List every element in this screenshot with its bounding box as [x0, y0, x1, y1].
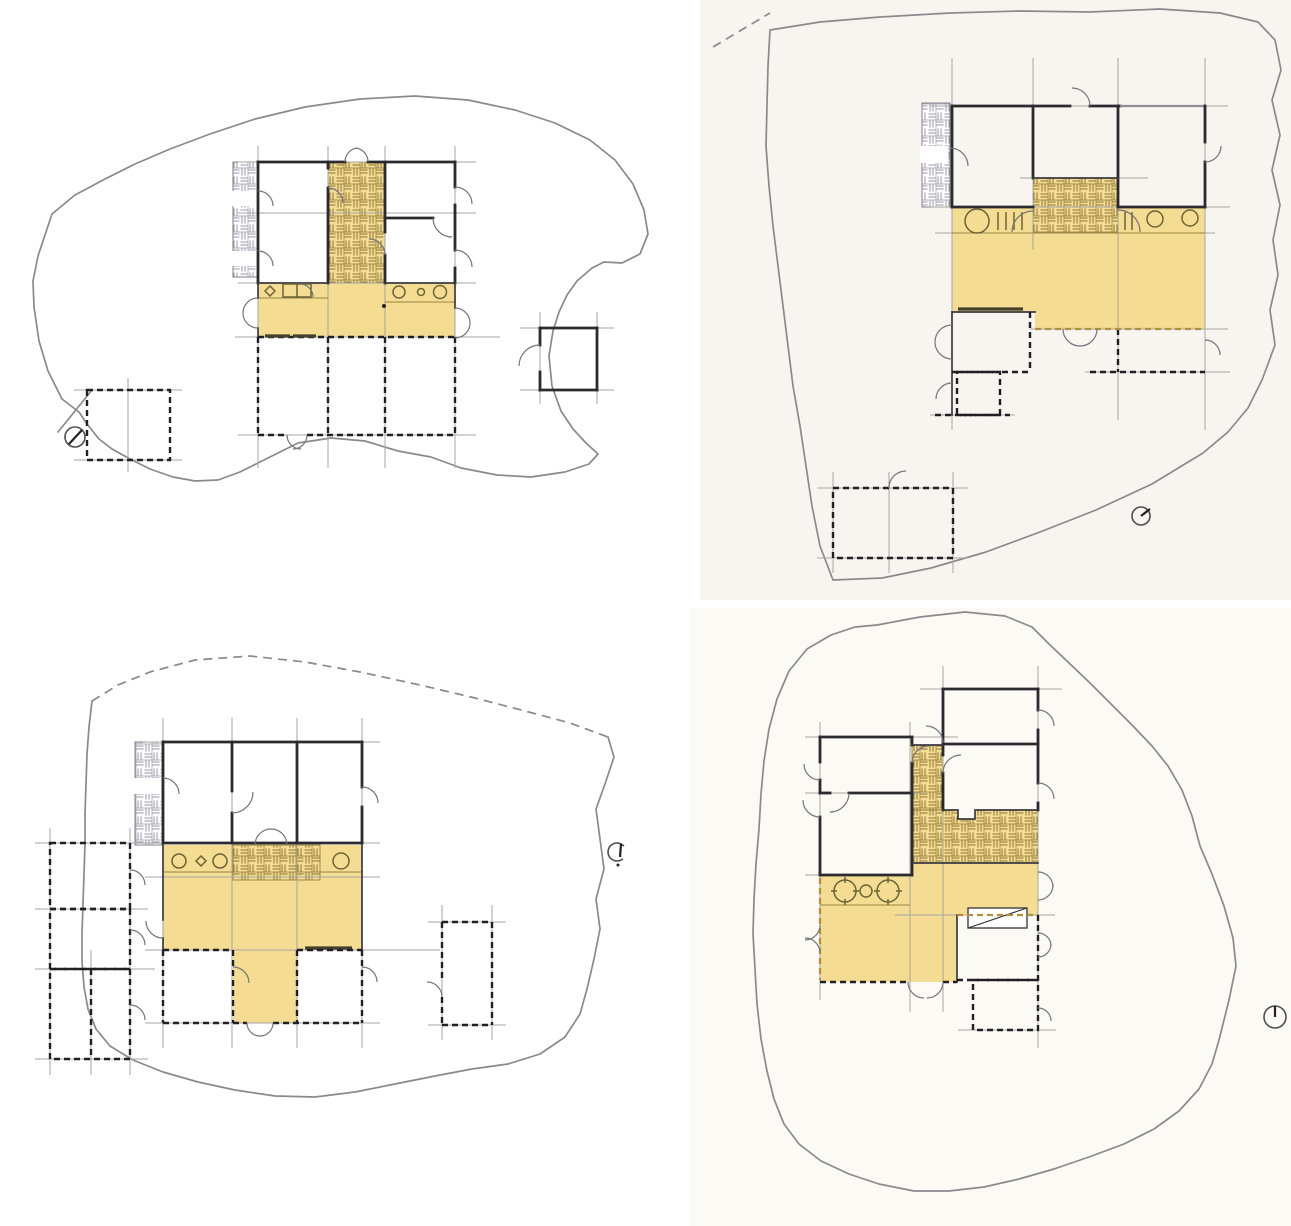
door-swing-icon — [130, 930, 145, 945]
door-swing-icon — [130, 1005, 145, 1020]
dashed-wall-line — [50, 909, 130, 969]
door-swing-icon — [243, 298, 258, 313]
door-swing-icon — [455, 250, 472, 267]
hatched-floor-overlay — [328, 162, 385, 283]
door-swing-icon — [163, 778, 179, 794]
door-swing-icon — [258, 191, 273, 206]
door-swing-icon — [232, 792, 253, 813]
marker-dot — [382, 304, 386, 308]
door-swing-icon — [258, 251, 273, 266]
floor-plans-figure — [0, 0, 1291, 1226]
scanned-figure-page — [0, 0, 1291, 1226]
door-swing-icon — [356, 148, 368, 162]
highlighted-floor-area — [258, 283, 455, 337]
north-arrow-tick — [620, 844, 621, 857]
hatched-floor-overlay — [1033, 178, 1118, 233]
plan-top-left — [33, 96, 648, 481]
door-swing-icon — [455, 308, 470, 323]
plan-bottom-right — [690, 608, 1291, 1226]
plan-top-right — [700, 0, 1291, 600]
door-swing-icon — [362, 967, 377, 982]
door-swing-icon — [519, 345, 540, 366]
door-swing-icon — [455, 323, 470, 338]
door-swing-icon — [146, 921, 163, 938]
marker-dot — [617, 864, 620, 867]
door-swing-icon — [455, 187, 472, 204]
paper-mask — [920, 146, 948, 163]
door-swing-icon — [427, 982, 442, 997]
dashed-wall-line — [50, 843, 130, 909]
door-swing-icon — [243, 313, 258, 328]
door-swing-icon — [345, 148, 357, 162]
paper-mask — [231, 251, 258, 266]
door-swing-icon — [260, 1023, 273, 1036]
paper-mask — [133, 778, 161, 794]
door-swing-icon — [362, 787, 378, 803]
door-swing-icon — [130, 870, 145, 885]
site-boundary-dashed-line — [92, 656, 608, 737]
door-swing-icon — [247, 1023, 260, 1036]
paper-mask — [231, 191, 258, 206]
hatched-floor-overlay — [233, 845, 320, 880]
door-swing-icon — [433, 218, 452, 237]
plan-bottom-left — [35, 656, 624, 1097]
north-arrow-tick — [69, 430, 82, 444]
hatched-floor-overlay — [912, 745, 943, 810]
